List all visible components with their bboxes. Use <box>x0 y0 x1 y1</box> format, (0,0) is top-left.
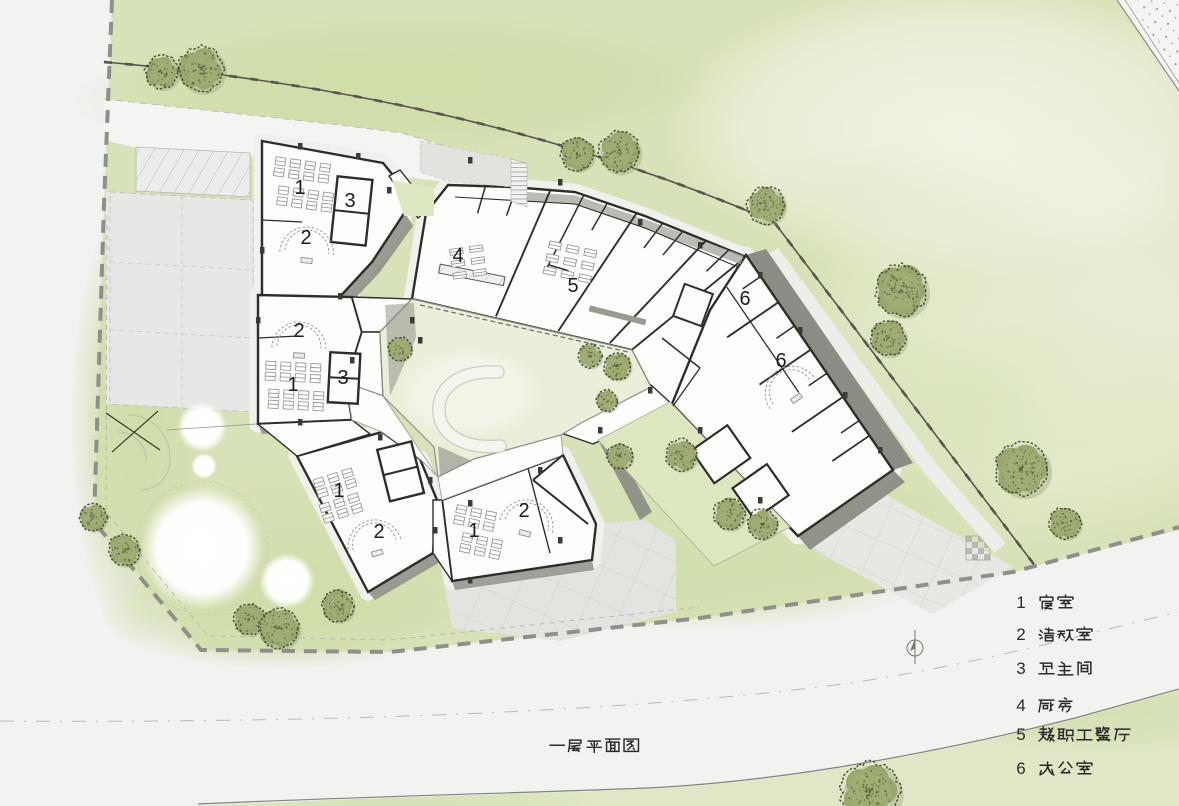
svg-text:2: 2 <box>1016 625 1025 644</box>
svg-text:2: 2 <box>518 500 529 522</box>
svg-text:5: 5 <box>1016 725 1025 744</box>
svg-text:4: 4 <box>1016 696 1025 715</box>
svg-text:1: 1 <box>468 520 479 542</box>
svg-text:3: 3 <box>1016 659 1025 678</box>
svg-text:3: 3 <box>337 367 348 389</box>
svg-text:6: 6 <box>1016 759 1025 778</box>
svg-text:2: 2 <box>293 320 304 342</box>
svg-text:1: 1 <box>294 177 305 199</box>
svg-text:2: 2 <box>373 521 384 543</box>
svg-text:2: 2 <box>300 227 311 249</box>
svg-text:5: 5 <box>567 275 578 297</box>
svg-text:1: 1 <box>333 480 344 502</box>
svg-text:1: 1 <box>287 374 298 396</box>
svg-text:6: 6 <box>739 288 750 310</box>
svg-text:6: 6 <box>775 350 786 372</box>
svg-text:1: 1 <box>1016 593 1025 612</box>
svg-text:4: 4 <box>452 245 463 267</box>
svg-text:3: 3 <box>344 190 355 212</box>
